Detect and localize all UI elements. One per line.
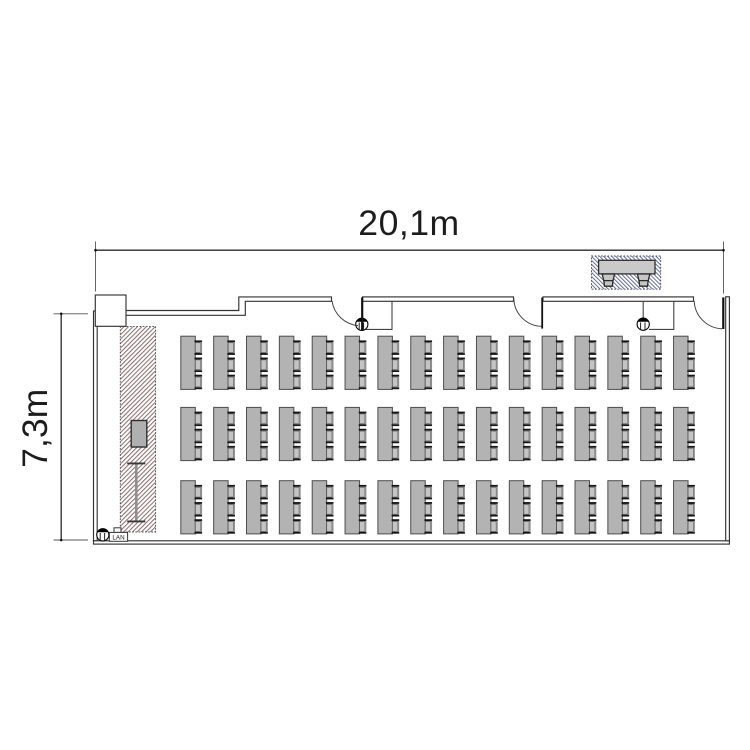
svg-text:20,1m: 20,1m — [358, 203, 459, 243]
svg-text:LAN: LAN — [112, 534, 125, 541]
svg-text:7,3m: 7,3m — [15, 389, 55, 468]
